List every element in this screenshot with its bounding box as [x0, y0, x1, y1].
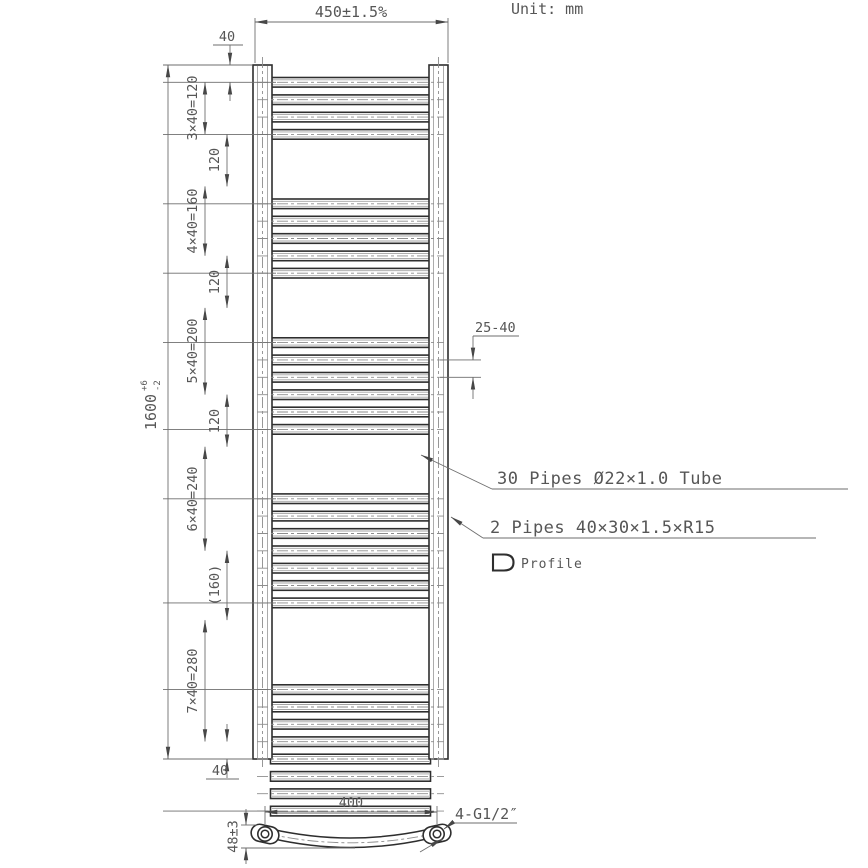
label-connections-text: 4-G1/2″ — [455, 805, 518, 823]
d-profile-icon — [493, 555, 514, 571]
dim-bottom-offset: 40 — [206, 724, 239, 779]
dim-group-1: 3×40=120 — [185, 75, 205, 140]
dim-width-text: 450±1.5% — [315, 3, 387, 21]
label-profiles-leader: 2 Pipes 40×30×1.5×R15 — [451, 517, 816, 538]
dim-gap-1: 120 — [207, 134, 227, 186]
svg-text:6×40=240: 6×40=240 — [185, 466, 201, 531]
dim-group-2: 4×40=160 — [185, 186, 205, 255]
dim-top-offset-text: 40 — [219, 29, 235, 45]
unit-label: Unit: mm — [511, 0, 583, 18]
svg-text:120: 120 — [207, 270, 223, 294]
radiator-drawing: 450±1.5% Unit: mm 1600 +6 -2 40 3×40=120… — [0, 0, 868, 868]
dim-group-3: 5×40=200 — [185, 308, 205, 395]
dim-group-5: 7×40=280 — [185, 620, 205, 741]
dim-pipe-spacing-text: 25-40 — [475, 320, 516, 336]
dim-bottom-offset-text: 40 — [212, 763, 228, 779]
dim-depth: 48±3 — [226, 809, 356, 864]
profile-label: Profile — [521, 557, 583, 572]
label-pipes-leader: 30 Pipes Ø22×1.0 Tube — [421, 455, 848, 489]
svg-text:4×40=160: 4×40=160 — [185, 188, 201, 253]
dim-overall-tol-lower: -2 — [153, 380, 163, 391]
profile-legend: Profile — [493, 555, 583, 573]
dim-chain: 3×40=120 120 4×40=160 120 5×40=200 120 — [185, 75, 227, 741]
label-profiles-text: 2 Pipes 40×30×1.5×R15 — [490, 518, 715, 538]
dim-gap-3: 120 — [207, 395, 227, 447]
dim-hole-centers-text: 400 — [339, 795, 363, 811]
dim-gap-4: (160) — [207, 551, 227, 620]
label-pipes-text: 30 Pipes Ø22×1.0 Tube — [497, 469, 722, 489]
dim-pipe-spacing: 25-40 — [440, 320, 519, 399]
svg-text:120: 120 — [207, 409, 223, 433]
svg-text:7×40=280: 7×40=280 — [185, 648, 201, 713]
pipe-rows — [271, 78, 431, 816]
dim-gap-2: 120 — [207, 256, 227, 308]
dim-overall-tol-upper: +6 — [140, 380, 150, 391]
dim-depth-text: 48±3 — [226, 820, 242, 853]
curve-top-edge — [271, 829, 430, 838]
dim-width: 450±1.5% — [255, 3, 448, 63]
svg-text:5×40=200: 5×40=200 — [185, 318, 201, 383]
bottom-view: 400 4-G1/2″ 48±3 — [226, 795, 519, 864]
technical-drawing-page: 450±1.5% Unit: mm 1600 +6 -2 40 3×40=120… — [0, 0, 868, 868]
svg-text:3×40=120: 3×40=120 — [185, 75, 201, 140]
svg-text:120: 120 — [207, 148, 223, 172]
dim-overall-value: 1600 — [142, 394, 160, 430]
svg-text:(160): (160) — [207, 565, 223, 606]
